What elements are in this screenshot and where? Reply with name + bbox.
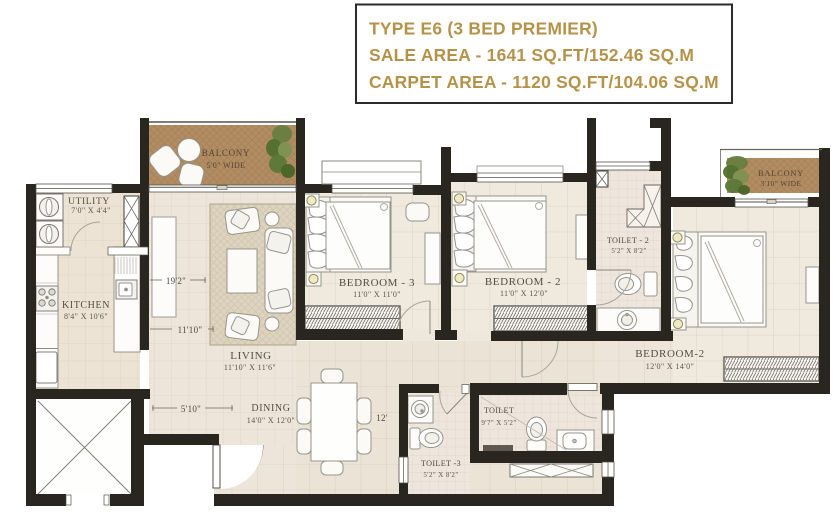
svg-text:7'0" X 4'4": 7'0" X 4'4" xyxy=(71,206,111,215)
svg-text:19'2": 19'2" xyxy=(166,276,186,286)
svg-text:TOILET - 2: TOILET - 2 xyxy=(607,236,649,245)
svg-text:12'0" X 14'0": 12'0" X 14'0" xyxy=(646,362,694,371)
svg-text:BEDROOM - 3: BEDROOM - 3 xyxy=(339,277,415,289)
svg-text:DINING: DINING xyxy=(251,403,290,414)
svg-text:BALCONY: BALCONY xyxy=(202,148,250,158)
svg-text:BALCONY: BALCONY xyxy=(758,168,804,178)
svg-text:5'10": 5'10" xyxy=(181,404,201,414)
svg-text:12': 12' xyxy=(376,413,388,423)
svg-text:14'0" X 12'0": 14'0" X 12'0" xyxy=(247,416,295,425)
svg-text:11'10": 11'10" xyxy=(178,325,203,335)
svg-text:BEDROOM-2: BEDROOM-2 xyxy=(635,348,705,360)
svg-text:TOILET -3: TOILET -3 xyxy=(421,459,461,468)
svg-text:TYPE E6 (3 BED PREMIER): TYPE E6 (3 BED PREMIER) xyxy=(369,19,598,39)
svg-text:5'2" X 8'2": 5'2" X 8'2" xyxy=(611,247,646,255)
svg-text:BEDROOM - 2: BEDROOM - 2 xyxy=(485,276,561,288)
svg-text:TOILET: TOILET xyxy=(484,406,514,415)
svg-text:8'4" X 10'6": 8'4" X 10'6" xyxy=(64,312,108,321)
svg-text:5'2" X 8'2": 5'2" X 8'2" xyxy=(423,471,458,479)
svg-text:CARPET AREA - 1120 SQ.FT/104.0: CARPET AREA - 1120 SQ.FT/104.06 SQ.M xyxy=(369,72,719,92)
svg-text:11'0" X 12'0": 11'0" X 12'0" xyxy=(500,289,548,298)
svg-text:9'7" X 5'2": 9'7" X 5'2" xyxy=(481,419,516,427)
svg-text:11'0" X 11'0": 11'0" X 11'0" xyxy=(353,290,401,299)
svg-text:KITCHEN: KITCHEN xyxy=(62,300,110,311)
svg-text:5'0" WIDE: 5'0" WIDE xyxy=(206,161,245,170)
svg-text:11'10" X 11'6": 11'10" X 11'6" xyxy=(224,363,276,372)
svg-text:LIVING: LIVING xyxy=(230,350,271,362)
svg-text:SALE AREA - 1641 SQ.FT/152.46: SALE AREA - 1641 SQ.FT/152.46 SQ.M xyxy=(369,45,694,65)
svg-text:3'10" WIDE: 3'10" WIDE xyxy=(761,179,802,188)
